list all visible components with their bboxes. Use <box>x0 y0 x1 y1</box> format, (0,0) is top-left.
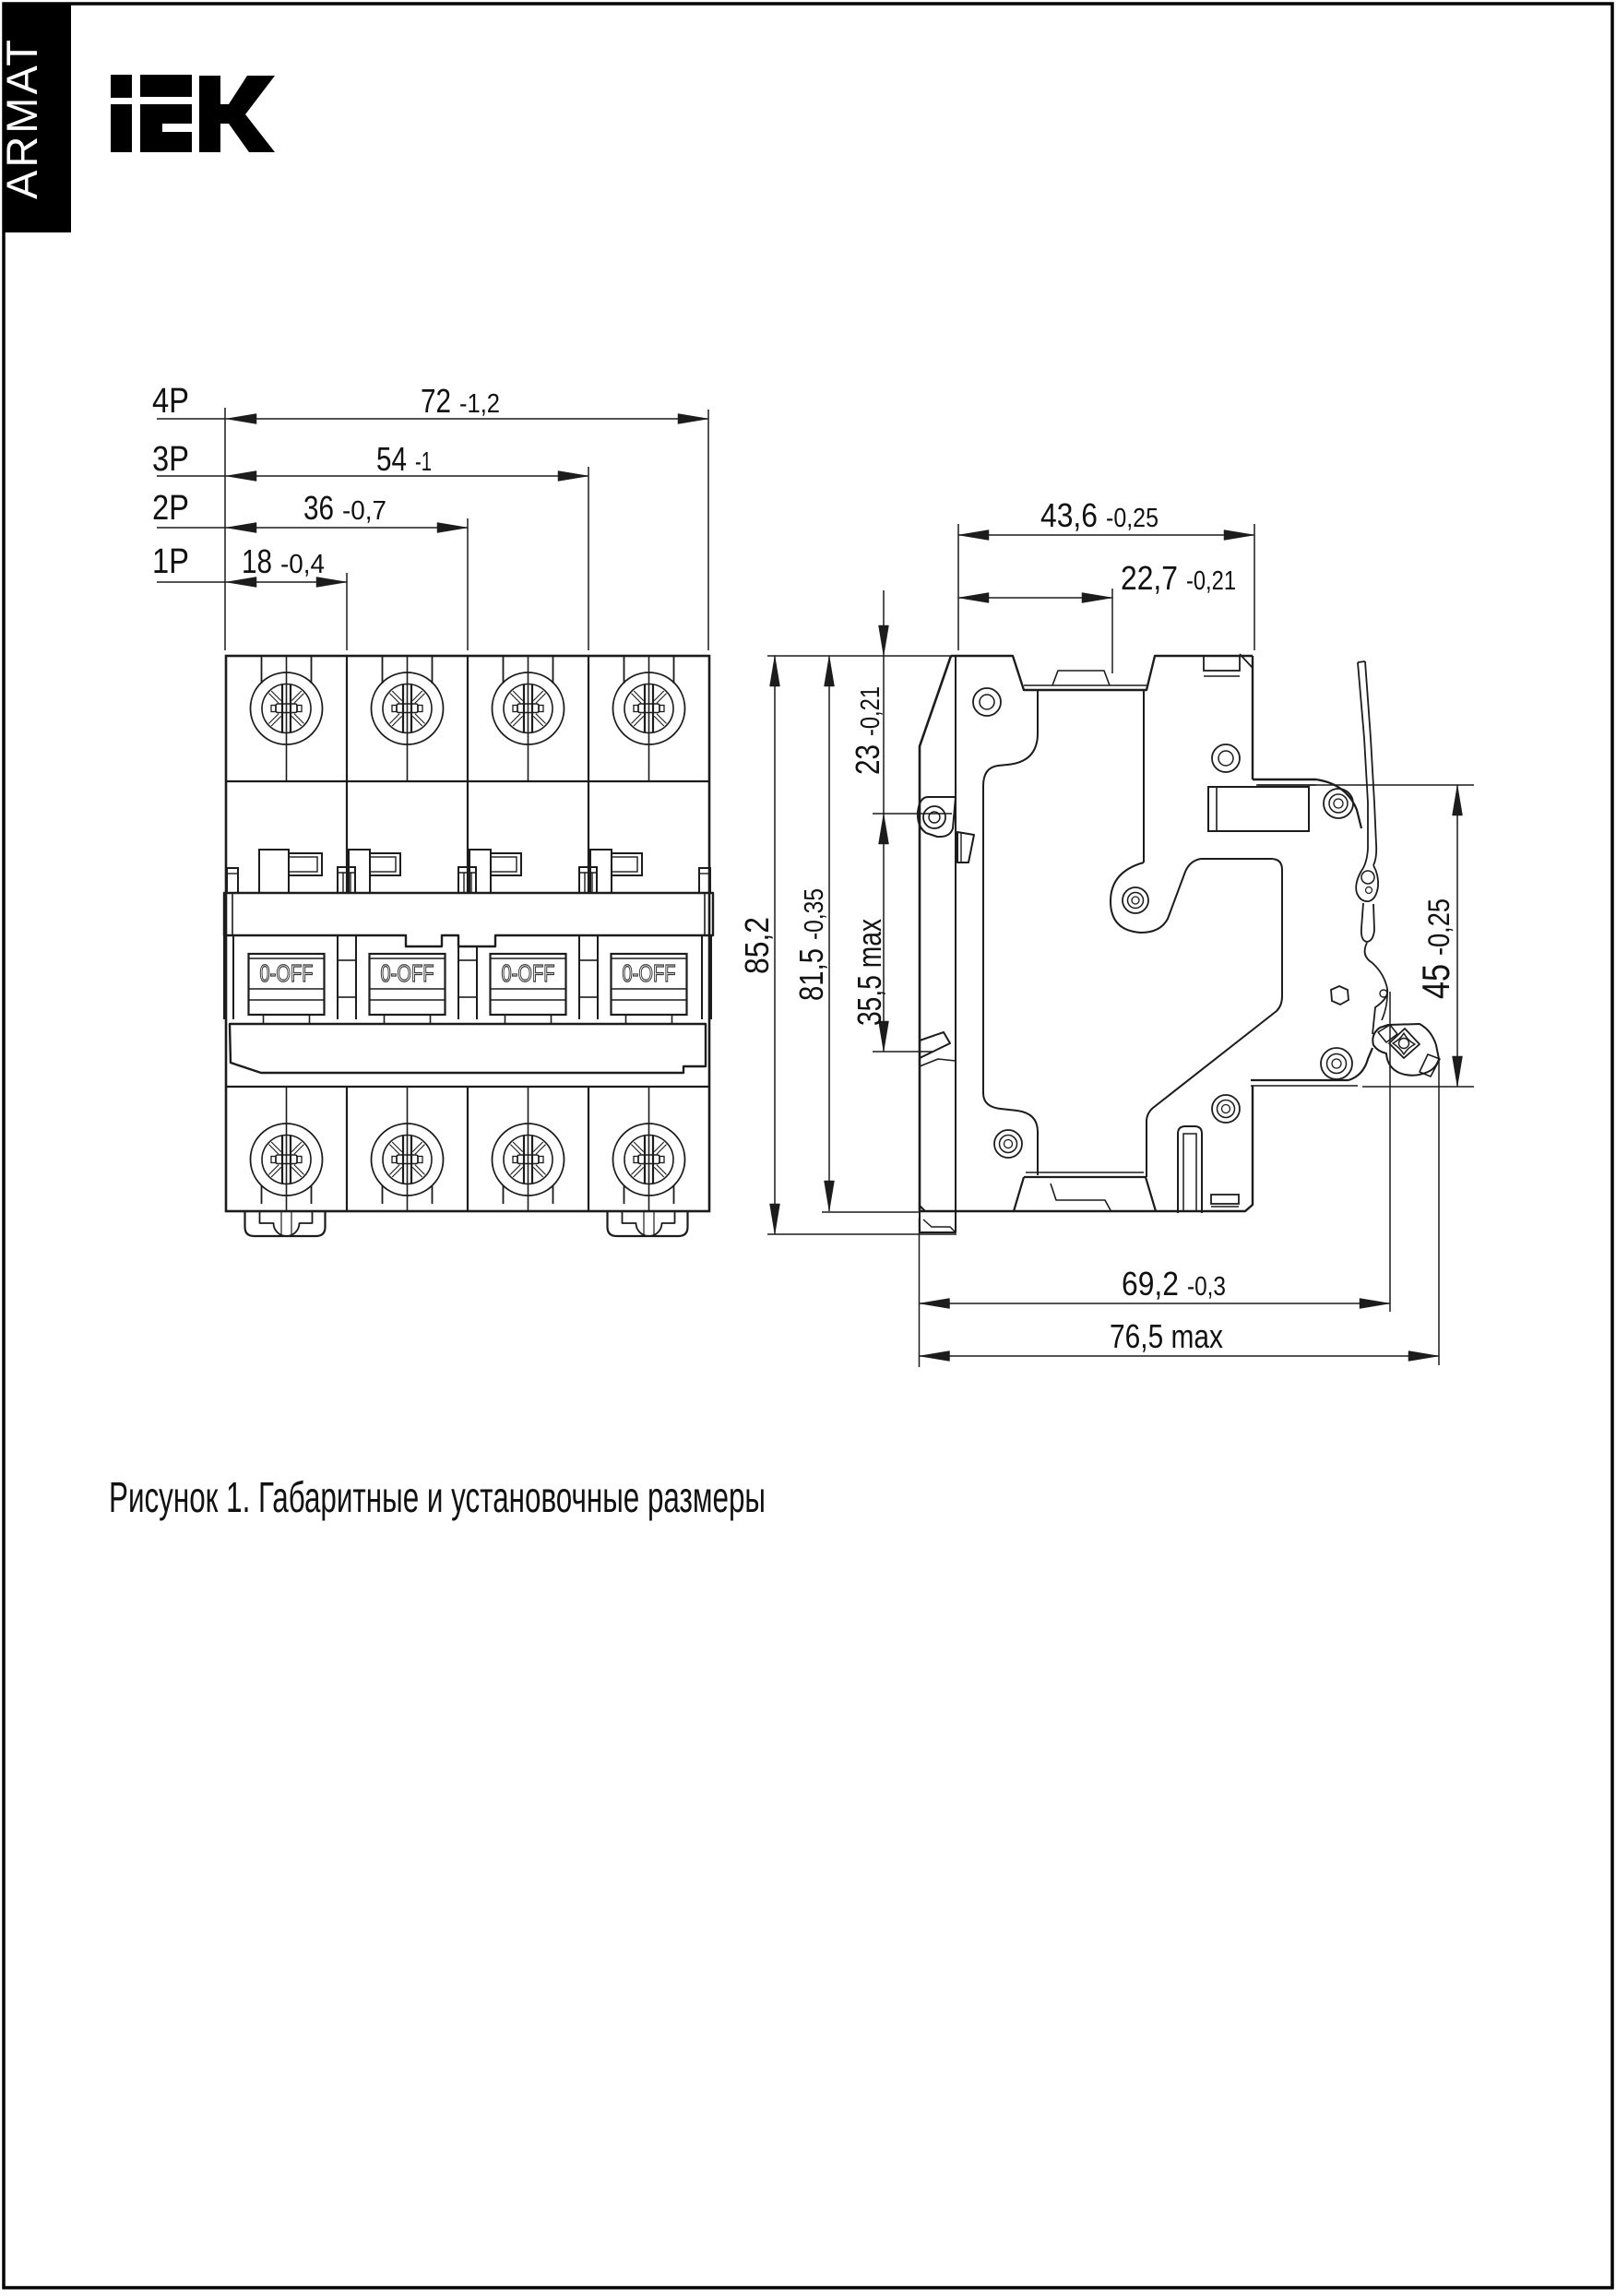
svg-text:76,5 max: 76,5 max <box>1110 1317 1223 1355</box>
svg-text:-0,7: -0,7 <box>342 496 386 526</box>
svg-text:22,7: 22,7 <box>1121 559 1178 597</box>
svg-text:1P: 1P <box>152 542 189 581</box>
svg-text:2P: 2P <box>152 489 189 528</box>
svg-text:0-OFF: 0-OFF <box>502 959 555 987</box>
svg-text:-1: -1 <box>415 447 432 477</box>
svg-text:-0,21: -0,21 <box>856 686 885 736</box>
svg-text:ARMAT: ARMAT <box>0 37 46 199</box>
svg-text:-0,3: -0,3 <box>1187 1272 1226 1302</box>
svg-text:43,6: 43,6 <box>1040 496 1098 534</box>
svg-text:-0,21: -0,21 <box>1186 566 1236 596</box>
svg-text:54: 54 <box>376 440 407 478</box>
svg-text:18: 18 <box>242 542 272 580</box>
svg-text:35,5 max: 35,5 max <box>850 919 888 1026</box>
svg-text:36: 36 <box>303 489 334 527</box>
svg-text:69,2: 69,2 <box>1122 1265 1179 1303</box>
svg-text:81,5: 81,5 <box>792 948 830 1001</box>
svg-text:-0,35: -0,35 <box>800 888 829 940</box>
svg-text:0-OFF: 0-OFF <box>623 959 676 987</box>
svg-text:85,2: 85,2 <box>738 917 776 974</box>
svg-text:-0,25: -0,25 <box>1106 504 1159 533</box>
svg-text:0-OFF: 0-OFF <box>381 959 434 987</box>
svg-text:-0,25: -0,25 <box>1422 898 1456 956</box>
svg-text:3P: 3P <box>152 440 189 479</box>
svg-text:45: 45 <box>1414 964 1457 999</box>
svg-text:23: 23 <box>849 744 886 775</box>
svg-text:72: 72 <box>421 382 451 420</box>
svg-text:-1,2: -1,2 <box>459 389 500 419</box>
svg-text:Рисунок 1. Габаритные и устано: Рисунок 1. Габаритные и установочные раз… <box>109 1473 766 1521</box>
svg-text:-0,4: -0,4 <box>280 550 325 579</box>
svg-text:4P: 4P <box>152 382 189 421</box>
svg-text:0-OFF: 0-OFF <box>260 959 314 987</box>
